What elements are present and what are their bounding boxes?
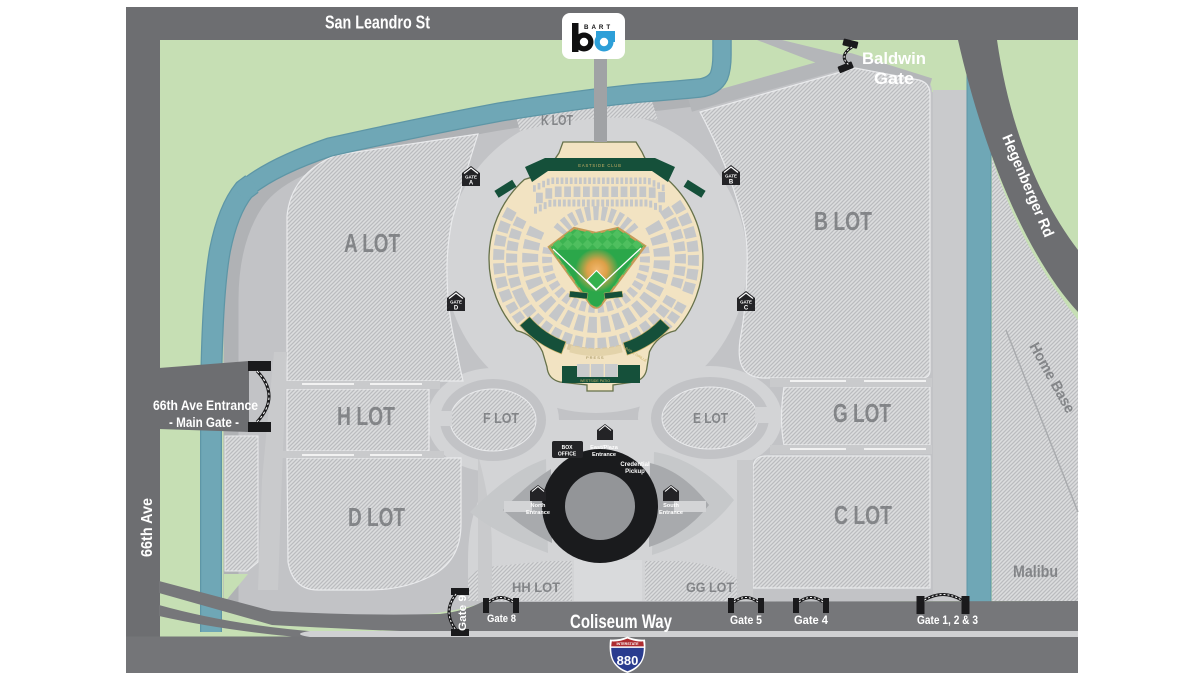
svg-text:Pickup: Pickup [625, 469, 645, 475]
svg-text:F LOT: F LOT [483, 410, 519, 427]
svg-text:San Leandro St: San Leandro St [325, 13, 430, 33]
svg-text:Coliseum Way: Coliseum Way [570, 612, 672, 633]
svg-text:Gate: Gate [874, 69, 914, 88]
svg-text:G LOT: G LOT [833, 398, 891, 428]
svg-text:OFFICE: OFFICE [558, 452, 577, 458]
svg-text:GATE: GATE [725, 174, 737, 179]
svg-text:South: South [663, 503, 679, 509]
svg-text:Gate 9: Gate 9 [457, 595, 469, 631]
svg-text:Gate 4: Gate 4 [794, 615, 829, 627]
svg-text:GATE: GATE [740, 300, 752, 305]
svg-text:66th Ave: 66th Ave [139, 498, 156, 557]
svg-text:BART: BART [584, 24, 613, 31]
svg-text:66th Ave Entrance: 66th Ave Entrance [153, 398, 258, 413]
svg-text:GATE: GATE [450, 300, 462, 305]
svg-text:Entrance: Entrance [659, 510, 683, 516]
svg-text:HH LOT: HH LOT [512, 579, 560, 595]
svg-text:Malibu: Malibu [1013, 563, 1058, 581]
svg-text:PRESS: PRESS [586, 355, 605, 360]
svg-text:C: C [744, 306, 749, 312]
svg-text:Entrance: Entrance [592, 452, 616, 458]
svg-text:INTERSTATE: INTERSTATE [616, 642, 639, 646]
svg-text:D LOT: D LOT [348, 502, 405, 532]
svg-text:B: B [729, 180, 734, 186]
svg-text:B LOT: B LOT [814, 206, 872, 236]
svg-text:Credential: Credential [620, 462, 650, 468]
svg-text:H LOT: H LOT [337, 401, 395, 431]
svg-text:North: North [531, 503, 546, 509]
svg-text:GG LOT: GG LOT [686, 579, 734, 595]
svg-text:Gate 1, 2 & 3: Gate 1, 2 & 3 [917, 615, 978, 627]
svg-text:EASTSIDE CLUB: EASTSIDE CLUB [578, 163, 621, 168]
svg-text:A LOT: A LOT [344, 228, 400, 258]
svg-text:GATE: GATE [465, 175, 477, 180]
svg-text:880: 880 [617, 653, 639, 668]
svg-text:Gate 8: Gate 8 [487, 613, 516, 625]
svg-text:E LOT: E LOT [693, 410, 728, 427]
svg-text:BOX: BOX [562, 445, 574, 451]
svg-text:WESTSIDE PATIO: WESTSIDE PATIO [580, 379, 610, 383]
svg-text:C LOT: C LOT [834, 500, 892, 530]
svg-text:East/Plaza: East/Plaza [590, 445, 619, 451]
svg-text:- Main Gate -: - Main Gate - [169, 415, 239, 430]
svg-text:Baldwin: Baldwin [862, 49, 926, 68]
svg-text:Entrance: Entrance [526, 510, 550, 516]
svg-text:A: A [469, 181, 474, 187]
svg-text:Gate 5: Gate 5 [730, 615, 763, 627]
svg-text:D: D [454, 306, 459, 312]
